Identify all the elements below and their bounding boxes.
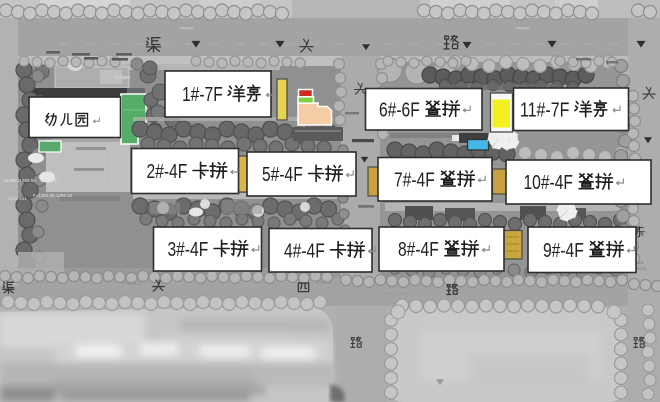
svg-text:1294.10: 1294.10 xyxy=(40,178,57,183)
svg-text:1293.8: 1293.8 xyxy=(316,280,332,286)
svg-text:8#-4F: 8#-4F xyxy=(398,239,443,261)
svg-text:F=1292.80 1294.10: F=1292.80 1294.10 xyxy=(33,193,73,198)
svg-text:7#-4F: 7#-4F xyxy=(394,169,439,191)
svg-text:1#-7F: 1#-7F xyxy=(182,84,227,106)
svg-text:5#-4F: 5#-4F xyxy=(262,164,307,186)
svg-text:4#-4F: 4#-4F xyxy=(284,240,329,262)
svg-text:9#-4F: 9#-4F xyxy=(543,240,588,262)
svg-text:3#-4F: 3#-4F xyxy=(168,239,213,261)
svg-text:10#-4F: 10#-4F xyxy=(524,172,578,194)
svg-text:11#-7F: 11#-7F xyxy=(520,99,574,121)
svg-text:1293.50 1294: 1293.50 1294 xyxy=(380,291,408,296)
svg-text:±0.000=1293.50: ±0.000=1293.50 xyxy=(3,178,36,183)
svg-text:P30967#: P30967# xyxy=(122,281,142,287)
svg-text:1292.601: 1292.601 xyxy=(8,196,27,201)
svg-text:2#-4F: 2#-4F xyxy=(147,161,192,183)
svg-text:6#-6F: 6#-6F xyxy=(379,99,424,121)
